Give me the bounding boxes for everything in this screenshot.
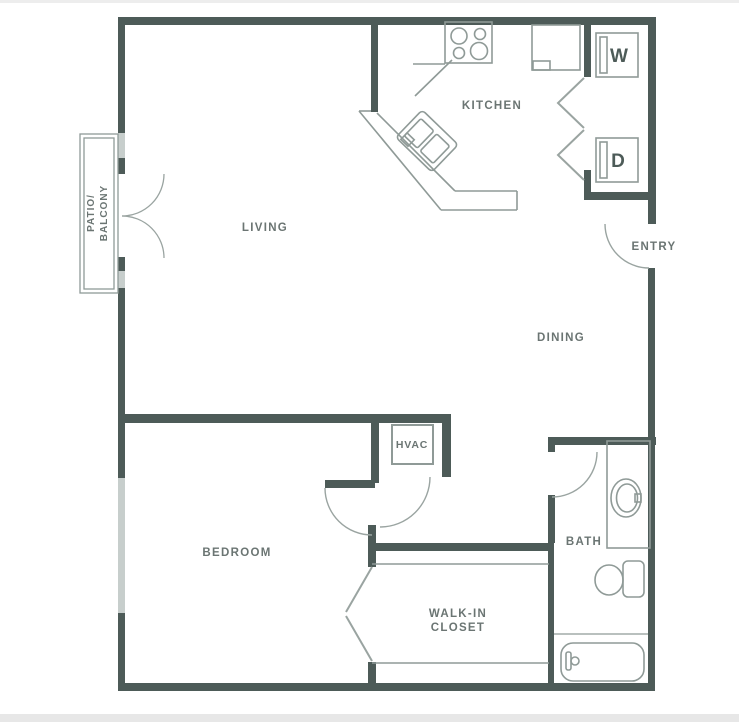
- wd-bifold-doors: [558, 78, 584, 180]
- wall-bedroom-door-stub: [325, 480, 375, 488]
- wall-wd-closet-left-lower: [584, 170, 591, 192]
- label-kitchen: KITCHEN: [462, 100, 522, 112]
- stove-icon: [445, 22, 492, 63]
- walls: [118, 17, 656, 691]
- wall-bottom: [118, 683, 655, 691]
- patio-window-upper: [118, 133, 125, 158]
- wall-hvac-right: [442, 423, 451, 477]
- label-washer: W: [610, 46, 628, 67]
- label-hvac: HVAC: [396, 439, 428, 451]
- wall-closet-left-stub: [368, 662, 376, 683]
- bedroom-window: [118, 478, 125, 613]
- floor-plan-canvas: LIVING KITCHEN DINING ENTRY BEDROOM BATH…: [0, 0, 739, 722]
- wall-left-seg3: [118, 613, 125, 691]
- label-dining: DINING: [537, 332, 585, 344]
- wall-bedroom-top: [118, 414, 451, 423]
- wall-kitchen-living: [371, 25, 378, 112]
- wall-hvac-left: [371, 423, 379, 483]
- wall-right-lower: [648, 268, 655, 691]
- wall-left-jamb1: [118, 158, 125, 174]
- label-patio-line2: BALCONY: [99, 185, 110, 241]
- label-bedroom: BEDROOM: [202, 547, 271, 559]
- wall-left-seg1: [118, 17, 125, 133]
- closet-bifold-doors: [346, 567, 372, 661]
- wall-left-seg2: [118, 288, 125, 478]
- wall-closet-top: [368, 543, 552, 551]
- patio-door-swing-lower: [122, 216, 164, 258]
- wall-wd-closet-bottom: [584, 192, 656, 200]
- bathtub-icon: [561, 643, 644, 681]
- wall-wd-closet-left-upper: [584, 25, 591, 77]
- label-patio-line1: PATIO/: [86, 194, 97, 232]
- floor-plan: LIVING KITCHEN DINING ENTRY BEDROOM BATH…: [0, 0, 739, 722]
- toilet-icon: [595, 561, 644, 597]
- patio-window-lower: [118, 271, 125, 288]
- label-walkin-closet-line1: WALK-IN: [429, 608, 487, 620]
- fixtures: [80, 22, 650, 681]
- label-bath: BATH: [566, 536, 602, 548]
- label-dryer: D: [611, 151, 625, 172]
- wall-top: [118, 17, 656, 25]
- label-entry: ENTRY: [631, 241, 676, 253]
- refrigerator-icon: [532, 25, 580, 70]
- hvac-door-swing: [380, 477, 430, 527]
- bottom-edge-strip: [0, 714, 739, 722]
- label-walkin-closet-line2: CLOSET: [431, 622, 485, 634]
- bedroom-door-swing: [325, 488, 372, 535]
- top-edge-strip: [0, 0, 739, 3]
- bath-door-swing: [552, 452, 597, 497]
- vanity-sink-icon: [607, 441, 650, 548]
- patio-door-swing-upper: [122, 174, 164, 216]
- label-living: LIVING: [242, 222, 288, 234]
- wall-left-jamb2: [118, 257, 125, 271]
- wall-bath-left-bottom: [548, 495, 555, 543]
